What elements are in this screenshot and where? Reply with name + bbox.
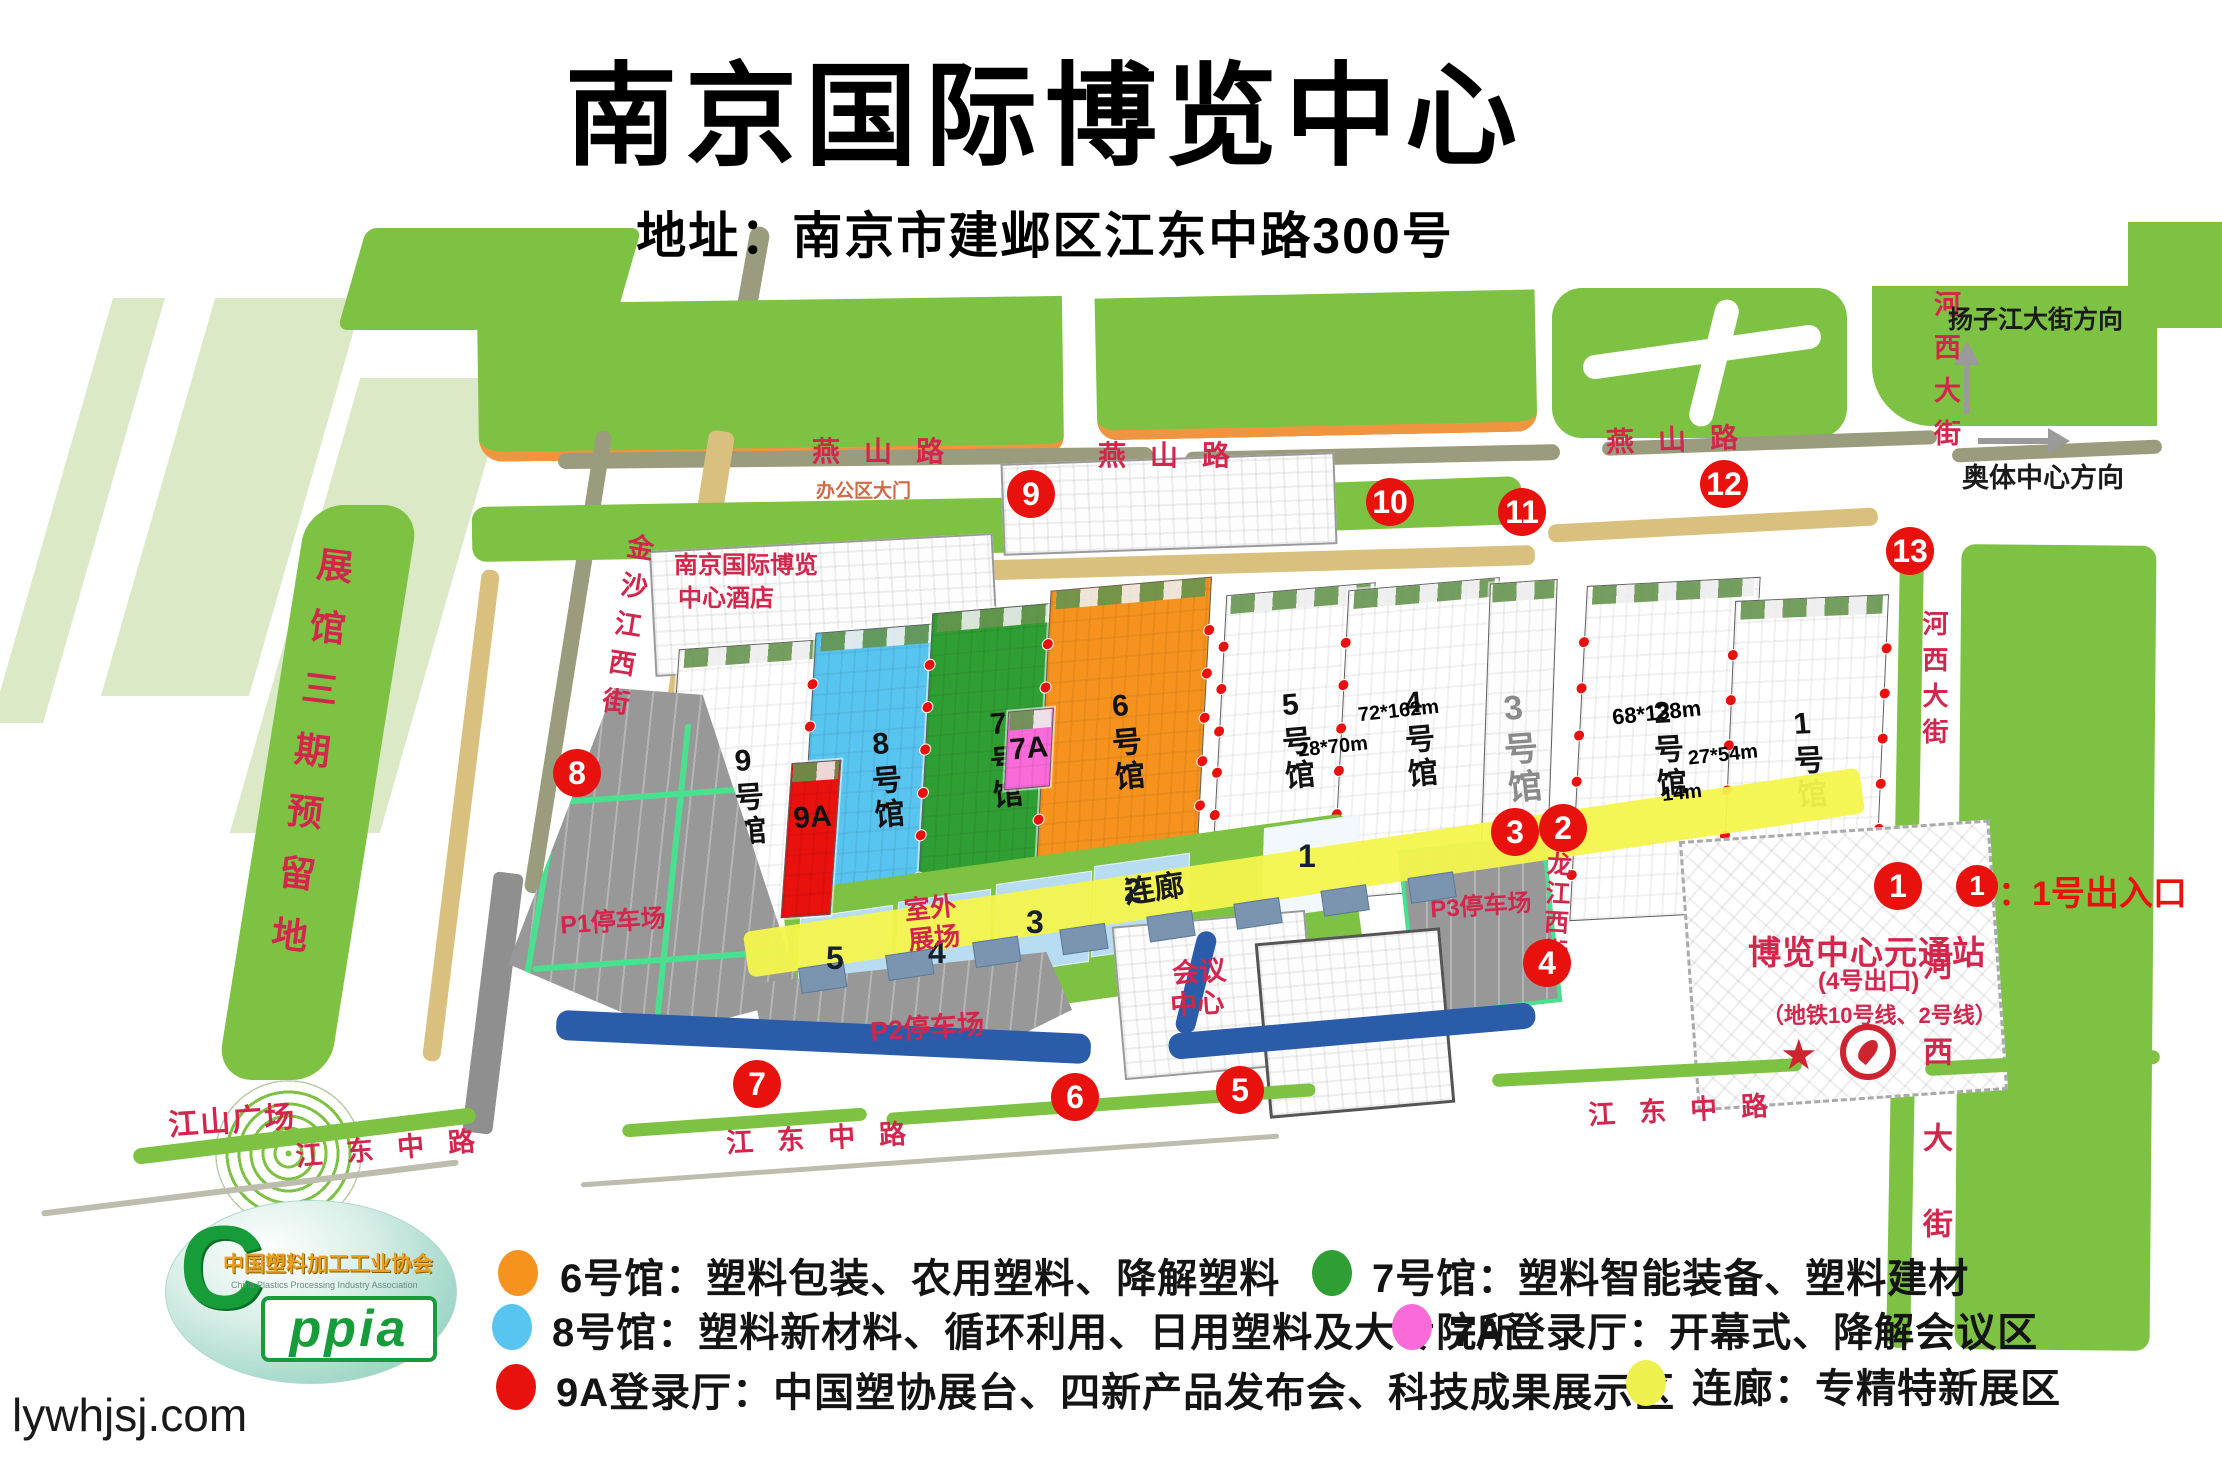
entrance-marker-11: 11 xyxy=(1498,488,1546,536)
hall-7a-label: 7A xyxy=(1008,730,1049,767)
yanshan-road-label: 燕山路 xyxy=(1098,434,1254,474)
legend-dot-hall7 xyxy=(1312,1250,1352,1296)
legend-text-hall9a: 9A登录厅：中国塑协展台、四新产品发布会、科技成果展示区 xyxy=(556,1360,1675,1418)
hotel-label-line2: 中心酒店 xyxy=(678,578,774,613)
legend-text-hall7a: 7A登录厅：开幕式、降解会议区 xyxy=(1452,1300,2038,1358)
aoti-direction-label: 奥体中心方向 xyxy=(1962,456,2124,495)
p2-label: P2停车场 xyxy=(869,1002,985,1049)
entrance-marker-7: 7 xyxy=(733,1060,781,1108)
legend-dot-hall8 xyxy=(492,1304,532,1350)
entrance-marker-2: 2 xyxy=(1539,804,1587,852)
cppia-org-name-en: China Plastics Processing Industry Assoc… xyxy=(231,1280,418,1290)
legend-dot-corridor xyxy=(1626,1360,1666,1406)
entrance-marker-6: 6 xyxy=(1051,1073,1099,1121)
page-title: 南京国际博览中心 xyxy=(0,26,2090,188)
arrow-right-icon xyxy=(1978,438,2062,444)
entrance-marker-13: 13 xyxy=(1886,527,1934,575)
conference-label-line2: 中心 xyxy=(1169,980,1226,1023)
green-corner xyxy=(2128,222,2222,328)
entrance-marker-5: 5 xyxy=(1216,1066,1264,1114)
website-watermark: lywhjsj.com xyxy=(12,1388,247,1442)
green-band-north xyxy=(477,296,1064,462)
cppia-acronym: ppia xyxy=(290,1303,409,1355)
p1-label: P1停车场 xyxy=(559,898,667,941)
hall-9a-label: 9A xyxy=(792,799,833,836)
legend-dot-hall7a xyxy=(1392,1304,1432,1350)
metro-logo-icon xyxy=(1840,1024,1896,1080)
metro-exit-label: (4号出口) xyxy=(1818,961,1919,996)
entrance-marker-10: 10 xyxy=(1366,478,1414,526)
legend-text-hall7: 7号馆：塑料智能装备、塑料建材 xyxy=(1372,1246,1969,1304)
green-interchange xyxy=(1552,288,1847,438)
legend-dot-hall9a xyxy=(496,1364,536,1410)
hall2-dim-3: 14m xyxy=(1661,780,1703,807)
outdoor-num-3: 3 xyxy=(1026,904,1044,941)
entrance-marker-8: 8 xyxy=(553,749,601,797)
entrance-note-marker: 1 xyxy=(1956,865,1998,907)
office-gate-label: 办公区大门 xyxy=(816,476,911,503)
entrance-marker-3: 3 xyxy=(1491,808,1539,856)
cppia-org-name-cn: 中国塑料加工工业协会 xyxy=(223,1248,433,1278)
outdoor-num-2: 2 xyxy=(1124,872,1142,909)
entrance-marker-1: 1 xyxy=(1874,862,1922,910)
outdoor-num-5: 5 xyxy=(826,940,844,977)
entrance-marker-12: 12 xyxy=(1700,460,1748,508)
green-band-north xyxy=(1095,289,1538,440)
site-boundary-road xyxy=(1548,507,1878,542)
outdoor-num-1: 1 xyxy=(1298,838,1316,875)
hall-8-label: 8号馆 xyxy=(857,726,909,834)
yanshan-road-label: 燕山路 xyxy=(1605,415,1762,460)
jiangdong-road-label: 江东中路 xyxy=(1587,1083,1793,1133)
hall-7a: 7A xyxy=(1004,708,1054,791)
parking-lane-line xyxy=(655,723,692,1015)
hall-6-label: 6号馆 xyxy=(1097,688,1150,796)
entrance-marker-9: 9 xyxy=(1007,470,1055,518)
yanshan-road-label: 燕山路 xyxy=(812,430,968,470)
legend-text-corridor: 连廊：专精特新展区 xyxy=(1692,1356,2061,1414)
legend-text-hall6: 6号馆：塑料包装、农用塑料、降解塑料 xyxy=(560,1246,1280,1304)
hexi-avenue-label: 河西大街 xyxy=(1916,610,1953,754)
cppia-acronym-box: ppia xyxy=(261,1296,437,1362)
entrance-note-text: ：1号出入口 xyxy=(1998,866,2187,915)
hotel-label-line1: 南京国际博览 xyxy=(674,545,818,580)
cppia-logo: C 中国塑料加工工业协会 China Plastics Processing I… xyxy=(165,1200,457,1384)
legend-dot-hall6 xyxy=(498,1250,538,1296)
yangzi-direction-label: 扬子江大街方向 xyxy=(1948,300,2123,336)
expo-map-poster: 展馆三期预留地 江山广场 南京国际博览 中心酒店 办公区大门 9号馆 9A 8号… xyxy=(0,0,2222,1476)
entrance-marker-4: 4 xyxy=(1523,939,1571,987)
star-icon: ★ xyxy=(1780,1030,1818,1079)
hall-3-label: 3号馆 xyxy=(1487,688,1548,809)
outdoor-label-line2: 展场 xyxy=(906,915,962,957)
legend-text-hall8: 8号馆：塑料新材料、循环利用、日用塑料及大专院所 xyxy=(552,1300,1518,1358)
p3-label: P3停车场 xyxy=(1429,883,1533,925)
west-gray-road xyxy=(462,871,524,1135)
metro-lines-label: （地铁10号线、2号线） xyxy=(1762,998,1997,1030)
page-subtitle: 地址：南京市建邺区江东中路300号 xyxy=(0,196,2090,268)
